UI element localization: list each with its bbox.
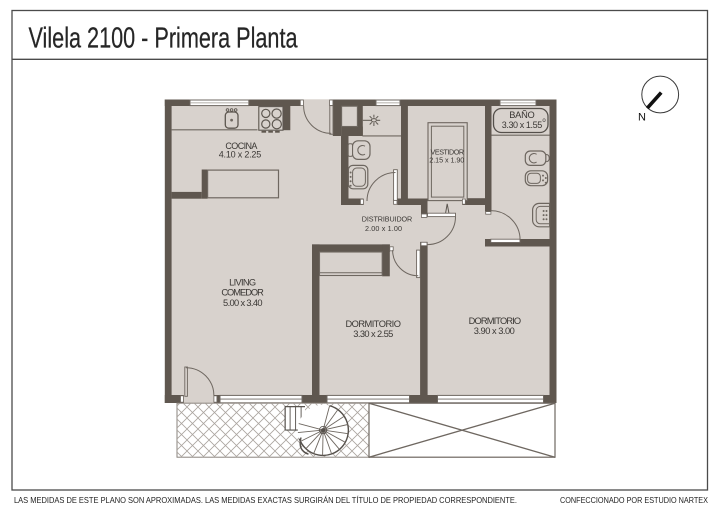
svg-text:BAÑO: BAÑO [509, 110, 535, 120]
svg-text:3.30 x 1.55: 3.30 x 1.55 [502, 120, 543, 130]
svg-text:DORMITORIO: DORMITORIO [469, 316, 522, 326]
svg-text:5.00 x 3.40: 5.00 x 3.40 [223, 298, 262, 308]
svg-text:Vilela 2100 - Primera Planta: Vilela 2100 - Primera Planta [29, 23, 299, 55]
svg-text:4.10 x 2.25: 4.10 x 2.25 [219, 150, 262, 160]
svg-text:2.00 x 1.00: 2.00 x 1.00 [365, 224, 402, 233]
svg-text:3.30 x 2.55: 3.30 x 2.55 [353, 329, 393, 339]
svg-text:DISTRIBUIDOR: DISTRIBUIDOR [362, 215, 413, 224]
svg-text:LIVING: LIVING [229, 277, 256, 287]
svg-text:CONFECCIONADO POR ESTUDIO NART: CONFECCIONADO POR ESTUDIO NARTEX [560, 496, 708, 505]
svg-text:COMEDOR: COMEDOR [221, 288, 264, 298]
svg-text:3.90 x 3.00: 3.90 x 3.00 [474, 326, 515, 336]
svg-text:N: N [638, 112, 646, 124]
svg-text:2.15 x 1.90: 2.15 x 1.90 [429, 155, 464, 164]
svg-text:LAS MEDIDAS DE ESTE PLANO SON: LAS MEDIDAS DE ESTE PLANO SON APROXIMADA… [14, 495, 517, 505]
svg-text:DORMITORIO: DORMITORIO [345, 319, 401, 329]
